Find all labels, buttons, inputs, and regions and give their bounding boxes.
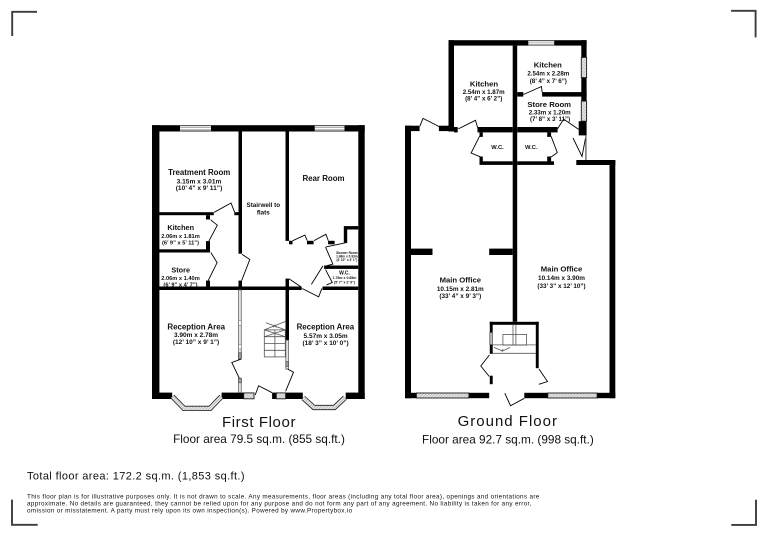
svg-text:1.76m x 0.85m: 1.76m x 0.85m bbox=[333, 276, 357, 280]
svg-text:Store: Store bbox=[171, 265, 190, 274]
svg-text:Total floor area: 172.2 sq.m.: Total floor area: 172.2 sq.m. (1,853 sq.… bbox=[27, 470, 245, 482]
svg-text:Kitchen: Kitchen bbox=[470, 79, 498, 88]
svg-text:(4’ 10” x 3’ 1”): (4’ 10” x 3’ 1”) bbox=[336, 258, 357, 262]
svg-text:5.57m x 3.05m: 5.57m x 3.05m bbox=[304, 333, 348, 340]
svg-text:(8’ 4” x 6’ 2”): (8’ 4” x 6’ 2”) bbox=[465, 96, 502, 103]
svg-text:2.06m x 1.40m: 2.06m x 1.40m bbox=[161, 276, 200, 282]
svg-text:flats: flats bbox=[257, 209, 270, 216]
svg-text:Treatment Room: Treatment Room bbox=[168, 168, 230, 177]
svg-text:Rear Room: Rear Room bbox=[302, 174, 344, 183]
svg-text:(33’ 3” x 12’ 10”): (33’ 3” x 12’ 10”) bbox=[537, 283, 585, 290]
svg-text:Kitchen: Kitchen bbox=[167, 223, 194, 232]
svg-text:3.90m x 2.78m: 3.90m x 2.78m bbox=[174, 332, 218, 339]
svg-text:2.06m x 1.81m: 2.06m x 1.81m bbox=[161, 234, 200, 240]
svg-text:approximate. No details are gu: approximate. No details are guaranteed, … bbox=[27, 500, 532, 507]
svg-text:10.14m x 3.90m: 10.14m x 3.90m bbox=[538, 275, 585, 282]
svg-text:2.54m x 2.28m: 2.54m x 2.28m bbox=[527, 71, 569, 78]
svg-text:omission or misstatement. A pa: omission or misstatement. A party must r… bbox=[27, 508, 353, 515]
svg-text:(6’ 9” x 5’ 11”): (6’ 9” x 5’ 11”) bbox=[162, 240, 199, 246]
svg-text:(33’ 4” x 9’ 3”): (33’ 4” x 9’ 3”) bbox=[439, 293, 481, 300]
svg-text:Main Office: Main Office bbox=[541, 264, 583, 273]
svg-text:(7’ 8” x 3’ 11”): (7’ 8” x 3’ 11”) bbox=[530, 116, 570, 123]
svg-text:Floor area 92.7 sq.m. (998 sq.: Floor area 92.7 sq.m. (998 sq.ft.) bbox=[422, 433, 594, 447]
svg-text:W.C.: W.C. bbox=[491, 145, 504, 151]
svg-text:(12’ 10” x 9’ 1”): (12’ 10” x 9’ 1”) bbox=[173, 339, 219, 346]
svg-text:W.C.: W.C. bbox=[525, 145, 538, 151]
svg-text:(18’ 3” x 10’ 0”): (18’ 3” x 10’ 0”) bbox=[302, 340, 348, 347]
svg-text:(6’ 9” x 4’ 7”): (6’ 9” x 4’ 7”) bbox=[163, 282, 197, 288]
svg-text:Main Office: Main Office bbox=[440, 275, 482, 284]
svg-text:This floor plan is for illustr: This floor plan is for illustrative purp… bbox=[27, 493, 540, 500]
svg-text:(5’ 7” x 2’ 9”): (5’ 7” x 2’ 9”) bbox=[334, 281, 355, 285]
svg-text:Stairwell to: Stairwell to bbox=[247, 202, 281, 209]
svg-text:Floor area 79.5 sq.m. (855 sq.: Floor area 79.5 sq.m. (855 sq.ft.) bbox=[173, 432, 345, 446]
svg-text:(8’ 4” x 7’ 6”): (8’ 4” x 7’ 6”) bbox=[530, 78, 567, 85]
svg-text:Store Room: Store Room bbox=[527, 100, 571, 109]
svg-text:Ground Floor: Ground Floor bbox=[458, 413, 558, 430]
svg-text:First Floor: First Floor bbox=[222, 414, 296, 431]
svg-text:(10’ 4” x 9’ 11”): (10’ 4” x 9’ 11”) bbox=[176, 185, 223, 192]
svg-text:Kitchen: Kitchen bbox=[534, 61, 562, 70]
svg-text:10.15m x 2.81m: 10.15m x 2.81m bbox=[437, 286, 484, 293]
svg-text:Reception Area: Reception Area bbox=[167, 322, 225, 331]
svg-text:Reception Area: Reception Area bbox=[297, 322, 355, 331]
